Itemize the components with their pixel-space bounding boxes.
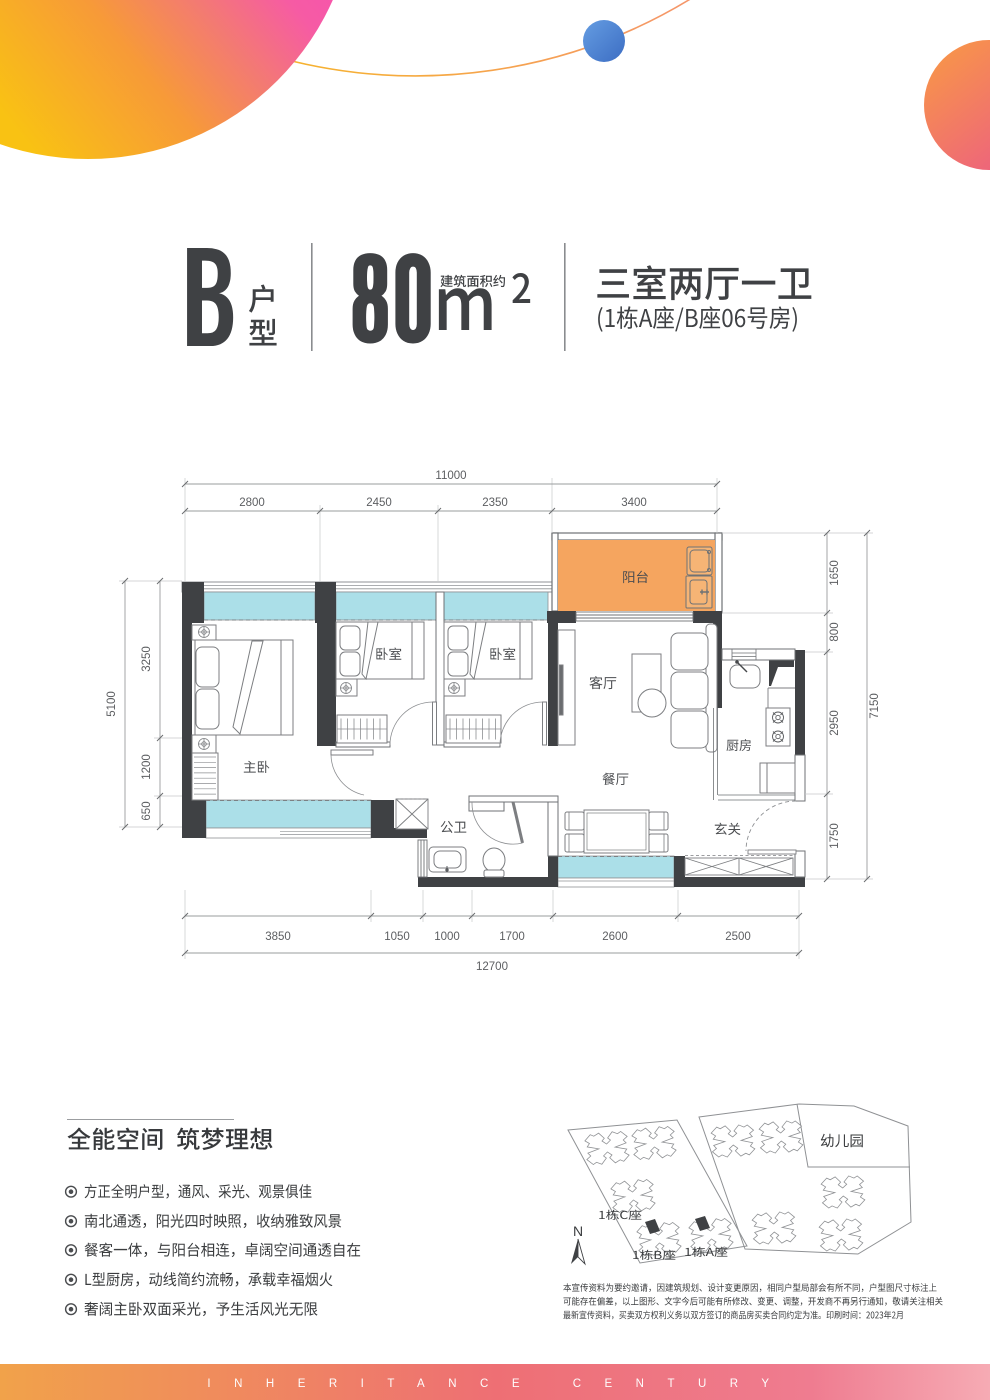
svg-text:800: 800 [829, 622, 841, 641]
svg-text:1750: 1750 [829, 823, 841, 849]
svg-text:12700: 12700 [476, 961, 508, 973]
svg-text:650: 650 [141, 801, 153, 820]
svg-text:3250: 3250 [141, 646, 153, 672]
svg-text:2800: 2800 [239, 497, 265, 509]
svg-text:1200: 1200 [141, 754, 153, 780]
svg-text:2500: 2500 [725, 931, 751, 943]
svg-text:3400: 3400 [621, 497, 647, 509]
svg-text:1000: 1000 [434, 931, 460, 943]
svg-text:2350: 2350 [482, 497, 508, 509]
svg-text:1650: 1650 [829, 560, 841, 586]
svg-text:2450: 2450 [366, 497, 392, 509]
svg-text:2600: 2600 [602, 931, 628, 943]
svg-text:5100: 5100 [106, 691, 118, 717]
svg-text:7150: 7150 [869, 693, 881, 719]
svg-text:1700: 1700 [499, 931, 525, 943]
svg-text:1050: 1050 [384, 931, 410, 943]
svg-text:INHERITANCE CENTURY: INHERITANCE CENTURY [207, 1378, 792, 1390]
svg-text:11000: 11000 [435, 470, 466, 482]
svg-text:3850: 3850 [265, 931, 291, 943]
svg-text:N: N [573, 1223, 583, 1239]
svg-text:2950: 2950 [829, 710, 841, 736]
